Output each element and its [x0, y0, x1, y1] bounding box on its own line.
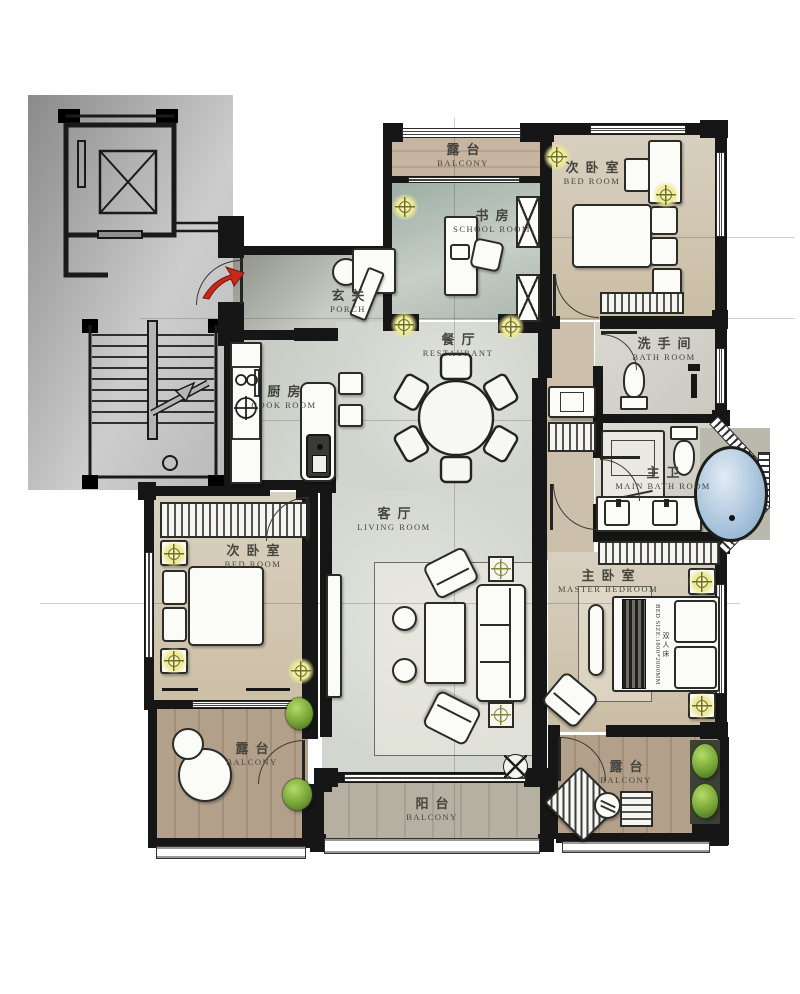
outdoor-chair	[620, 791, 653, 827]
wall	[532, 378, 547, 777]
room-label-en: BED ROOM	[219, 559, 286, 569]
sink	[604, 500, 630, 526]
room-label-cn: 主卧室	[558, 568, 658, 584]
sofa	[476, 584, 526, 702]
bar-stool	[338, 372, 363, 395]
wall	[383, 140, 392, 322]
room-label-bedroom-left: 次卧室 BED ROOM	[219, 543, 286, 569]
room-label-cn: 客厅	[357, 506, 430, 522]
towel-bar-icon	[691, 374, 697, 398]
bed-runner	[622, 599, 646, 689]
room-label-cn: 洗手间	[630, 336, 697, 352]
tv-console	[326, 574, 342, 698]
floor-drain-icon	[503, 754, 528, 779]
ottoman	[392, 606, 417, 631]
room-label-cn: 阳台	[406, 796, 458, 812]
ottoman	[392, 658, 417, 683]
ceiling-lamp-icon	[391, 312, 417, 338]
room-label-balcony-bl: 露台 BALCONY	[226, 741, 278, 767]
room-label-en: RESTAURANT	[423, 348, 494, 358]
room-label-en: MASTER BEDROOM	[558, 584, 658, 594]
mattress	[674, 600, 717, 643]
window	[716, 348, 725, 404]
room-label-cn: 露台	[437, 142, 489, 158]
window	[192, 701, 294, 708]
planter-box-icon	[488, 556, 514, 582]
wall	[548, 725, 560, 737]
room-label-balcony-br: 露台 BALCONY	[600, 759, 652, 785]
desk-chair	[469, 237, 505, 273]
room-label-bedroom-top: 次卧室 BED ROOM	[558, 160, 625, 186]
balcony-sill	[156, 846, 306, 859]
room-label-living: 客厅 LIVING ROOM	[357, 506, 430, 532]
room-label-cn: 次卧室	[558, 160, 625, 176]
room-label-en: PORCH	[324, 304, 371, 314]
room-label-en: LIVING ROOM	[357, 522, 430, 532]
drain-icon	[729, 515, 735, 521]
floor-plan: BED SIZE:1800*2000MM 双人床 露台 BALCONY 书房 S…	[0, 0, 800, 994]
wall	[540, 783, 548, 839]
window	[402, 128, 521, 138]
ceiling-lamp-icon	[161, 541, 187, 567]
bathtub	[694, 446, 768, 542]
window-slider	[344, 774, 526, 782]
dimension-tick	[246, 688, 290, 691]
room-label-cn: 主卫	[615, 465, 711, 481]
side-table	[594, 792, 621, 819]
pillow	[162, 570, 187, 605]
bar-stool	[338, 404, 363, 427]
towel-bar-icon	[688, 364, 700, 371]
coffee-table	[424, 602, 466, 684]
room-label-balcony-top: 露台 BALCONY	[437, 142, 489, 168]
sink	[652, 500, 678, 526]
room-label-en: BALCONY	[437, 158, 489, 168]
plant-icon	[692, 784, 718, 818]
bed	[188, 566, 264, 646]
dresser	[624, 158, 650, 192]
window	[716, 152, 725, 237]
window	[408, 177, 520, 183]
room-label-en: BALCONY	[600, 775, 652, 785]
room-label-cn: 书房	[453, 208, 531, 224]
room-label-cn: 餐厅	[423, 332, 494, 348]
wall	[538, 322, 552, 378]
room-label-en: SCHOOL ROOM	[453, 224, 531, 234]
bed	[572, 204, 652, 268]
plant-icon	[286, 698, 313, 729]
room-label-en: BALCONY	[226, 757, 278, 767]
room-label-bathroom: 洗手间 BATH ROOM	[630, 336, 697, 362]
wall	[148, 702, 157, 848]
ceiling-lamp-icon	[161, 648, 187, 674]
room-label-cn: 玄关	[324, 288, 371, 304]
closet-hangers	[600, 292, 684, 314]
room-label-en: BATH ROOM	[630, 352, 697, 362]
papasan-cushion	[172, 728, 204, 760]
balcony-sill	[562, 841, 710, 853]
entry-arrow-icon	[201, 264, 245, 300]
balcony-sill	[324, 838, 540, 854]
room-label-balcony-bc: 阳台 BALCONY	[406, 796, 458, 822]
wall	[600, 316, 728, 329]
pillow	[162, 607, 187, 642]
room-label-cn: 露台	[600, 759, 652, 775]
dining-table-set	[388, 352, 524, 488]
bench	[588, 604, 604, 676]
wall	[593, 532, 727, 541]
washing-machine	[548, 386, 596, 418]
room-label-master: 主卧室 MASTER BEDROOM	[558, 568, 658, 594]
ceiling-lamp-icon	[288, 658, 314, 684]
master-wardrobe-hangers	[598, 541, 720, 565]
room-label-cn: 露台	[226, 741, 278, 757]
room-label-cn: 厨房	[251, 384, 316, 400]
column	[294, 328, 338, 341]
ceiling-lamp-icon	[689, 569, 715, 595]
room-label-en: BALCONY	[406, 812, 458, 822]
monitor	[450, 244, 470, 260]
hall-closet-hangers	[548, 422, 596, 452]
ceiling-lamp-icon	[689, 693, 715, 719]
planter-box-icon	[488, 702, 514, 728]
ceiling-lamp-icon	[392, 194, 418, 220]
island-sink	[306, 434, 331, 478]
ceiling-lamp-icon	[498, 314, 524, 340]
room-label-main-bathroom: 主卫 MAIN BATH ROOM	[615, 465, 711, 491]
toilet-tank	[670, 426, 698, 440]
plant-icon	[283, 779, 312, 810]
room-label-porch: 玄关 PORCH	[324, 288, 371, 314]
ceiling-lamp-icon	[653, 182, 679, 208]
room-label-cn: 次卧室	[219, 543, 286, 559]
window	[145, 552, 153, 658]
room-label-kitchen: 厨房 COOK ROOM	[251, 384, 316, 410]
wall	[595, 414, 723, 423]
room-label-en: MAIN BATH ROOM	[615, 481, 711, 491]
window	[590, 125, 686, 134]
plant-icon	[692, 744, 718, 778]
mattress	[674, 646, 717, 689]
room-label-restaurant: 餐厅 RESTAURANT	[423, 332, 494, 358]
room-label-en: COOK ROOM	[251, 400, 316, 410]
pillow	[650, 206, 678, 235]
toilet-tank	[620, 396, 648, 410]
wall	[144, 486, 270, 496]
room-label-en: BED ROOM	[558, 176, 625, 186]
bed-type-text: 双人床	[660, 618, 671, 672]
pillow	[650, 237, 678, 266]
dimension-tick	[162, 688, 198, 691]
room-label-school: 书房 SCHOOL ROOM	[453, 208, 531, 234]
